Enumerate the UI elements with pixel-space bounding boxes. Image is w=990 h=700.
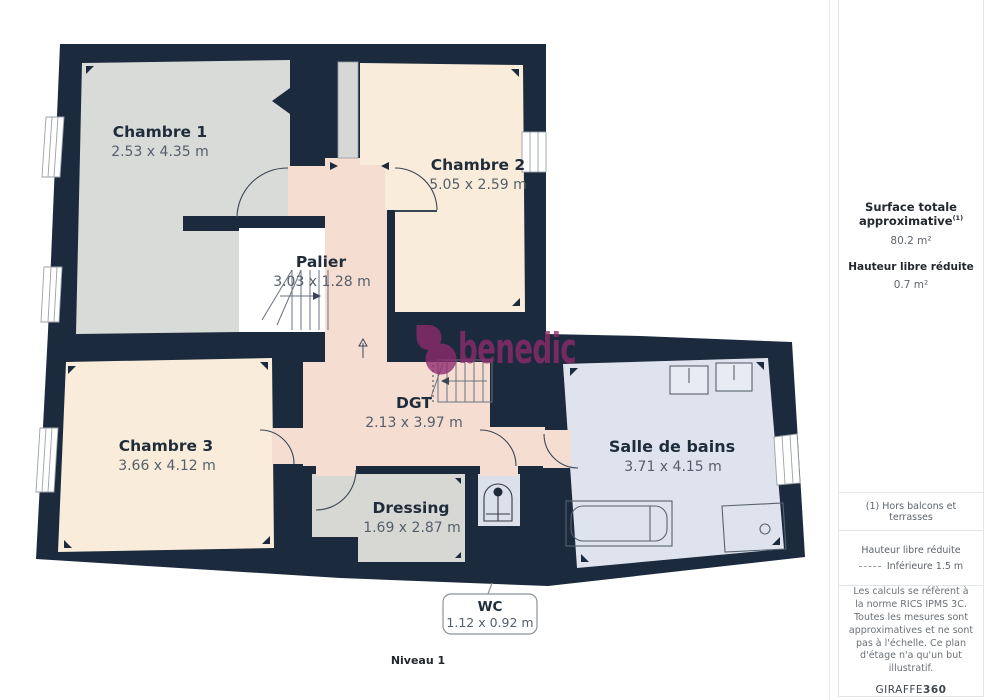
- wc-callout: WC 1.12 x 0.92 m: [443, 583, 537, 634]
- door-opening: [385, 162, 397, 210]
- reduced-height-title: Hauteur libre réduite: [848, 261, 974, 273]
- floorplan-page: Chambre 1 2.53 x 4.35 m Chambre 2 5.05 x…: [0, 0, 990, 700]
- window: [774, 434, 800, 485]
- room-label-palier: Palier: [296, 253, 347, 271]
- legend-title: Hauteur libre réduite: [861, 545, 960, 556]
- room-chambre-3: [58, 358, 274, 552]
- footnote-text: (1) Hors balcons et terrasses: [848, 501, 974, 523]
- door-opening: [316, 464, 356, 476]
- level-label: Niveau 1: [391, 654, 445, 667]
- room-dims-dgt: 2.13 x 3.97 m: [365, 415, 463, 431]
- floor-plan: Chambre 1 2.53 x 4.35 m Chambre 2 5.05 x…: [0, 0, 830, 700]
- reduced-height-value: 0.7 m²: [848, 279, 974, 291]
- room-dims-salle-de-bains: 3.71 x 4.15 m: [624, 459, 722, 475]
- legend-section: Hauteur libre réduite Inférieure 1.5 m: [839, 530, 983, 585]
- disclaimer-section: Les calculs se réfèrent à la norme RICS …: [839, 585, 983, 696]
- surface-summary-section: Surface totale approximative(1) 80.2 m² …: [839, 0, 983, 492]
- room-label-dressing: Dressing: [373, 499, 450, 517]
- benedic-watermark-text: benedic: [458, 324, 576, 373]
- dashed-line-icon: [859, 566, 881, 567]
- room-dims-dressing: 1.69 x 2.87 m: [363, 520, 461, 536]
- room-label-wc: WC: [478, 599, 503, 615]
- window: [41, 267, 62, 322]
- room-dims-chambre-1: 2.53 x 4.35 m: [111, 144, 209, 160]
- room-dims-palier: 3.03 x 1.28 m: [273, 274, 371, 290]
- door-opening: [480, 464, 518, 476]
- footnote-section: (1) Hors balcons et terrasses: [839, 492, 983, 530]
- room-label-chambre-1: Chambre 1: [113, 123, 207, 141]
- room-label-dgt: DGT: [396, 394, 432, 412]
- window: [522, 132, 546, 172]
- room-dims-chambre-3: 3.66 x 4.12 m: [118, 458, 216, 474]
- sidebar-divider: [829, 0, 830, 700]
- window: [42, 117, 64, 177]
- room-dims-chambre-2: 5.05 x 2.59 m: [429, 177, 527, 193]
- footnote-marker: (1): [953, 214, 963, 222]
- disclaimer-text: Les calculs se réfèrent à la norme RICS …: [848, 586, 974, 676]
- door-opening: [288, 166, 325, 216]
- giraffe360-logo: GIRAFFE360: [876, 684, 947, 696]
- surface-total-title: Surface totale approximative(1): [848, 201, 974, 229]
- room-label-chambre-3: Chambre 3: [119, 437, 213, 455]
- room-label-chambre-2: Chambre 2: [431, 156, 525, 174]
- legend-value: Inférieure 1.5 m: [887, 561, 963, 572]
- surface-total-value: 80.2 m²: [848, 235, 974, 247]
- room-label-salle-de-bains: Salle de bains: [609, 437, 735, 456]
- partition-panel: [338, 62, 358, 158]
- room-dims-wc: 1.12 x 0.92 m: [446, 615, 533, 630]
- window: [36, 428, 58, 492]
- info-sidebar: Surface totale approximative(1) 80.2 m² …: [838, 0, 984, 697]
